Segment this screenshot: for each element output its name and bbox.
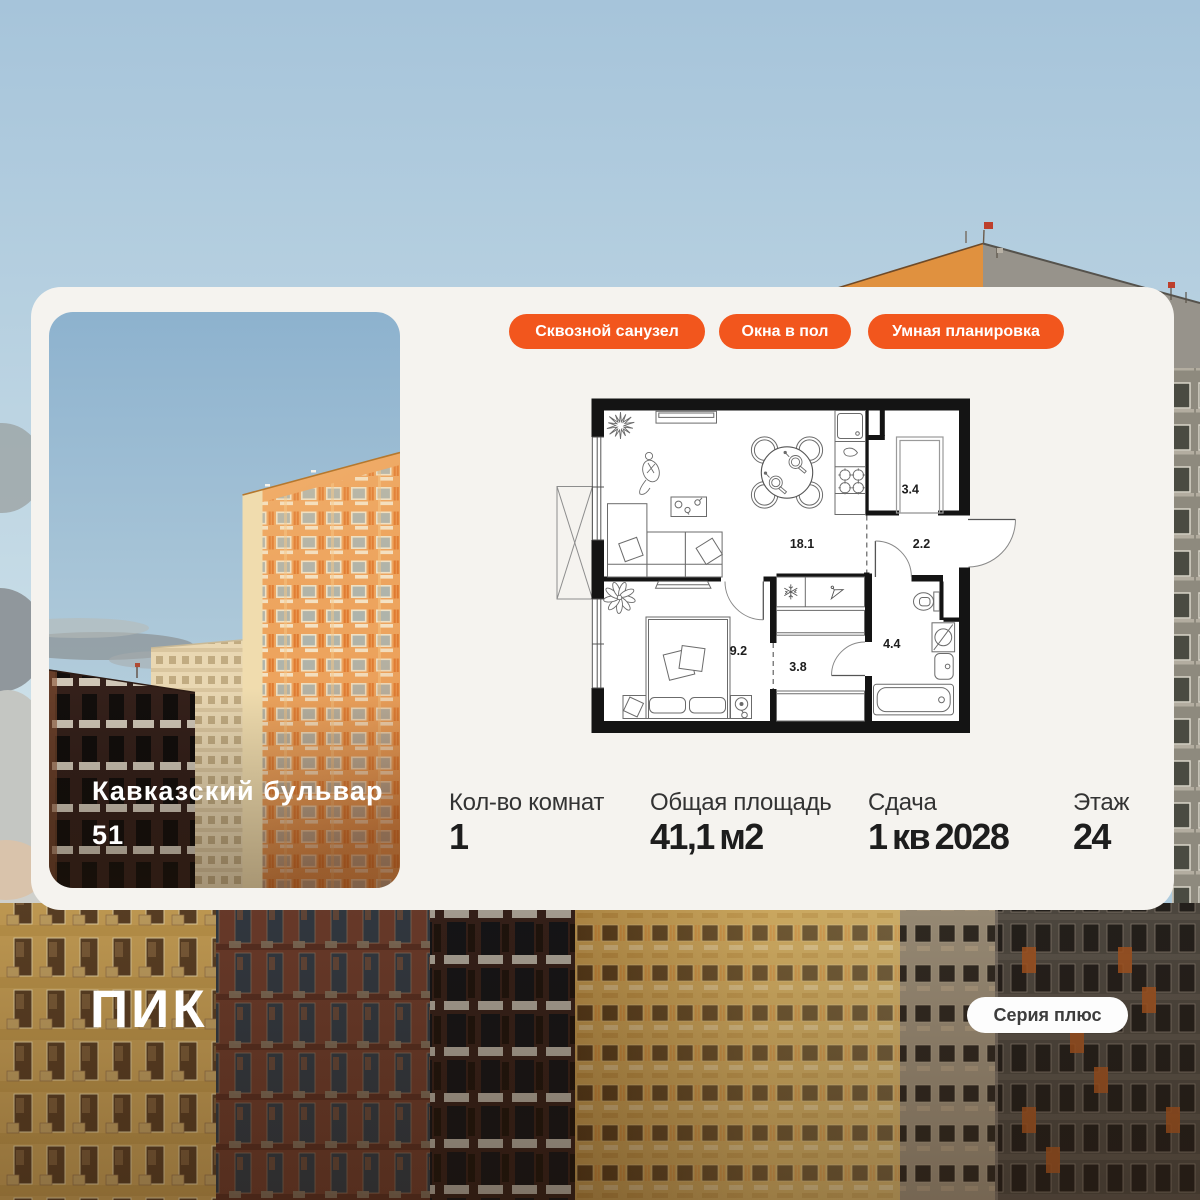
svg-text:3.8: 3.8 bbox=[789, 660, 806, 674]
svg-text:18.1: 18.1 bbox=[790, 537, 814, 551]
svg-text:3.4: 3.4 bbox=[902, 483, 919, 497]
svg-text:9.2: 9.2 bbox=[730, 644, 747, 658]
svg-text:4.4: 4.4 bbox=[883, 637, 900, 651]
svg-text:2.2: 2.2 bbox=[913, 537, 930, 551]
